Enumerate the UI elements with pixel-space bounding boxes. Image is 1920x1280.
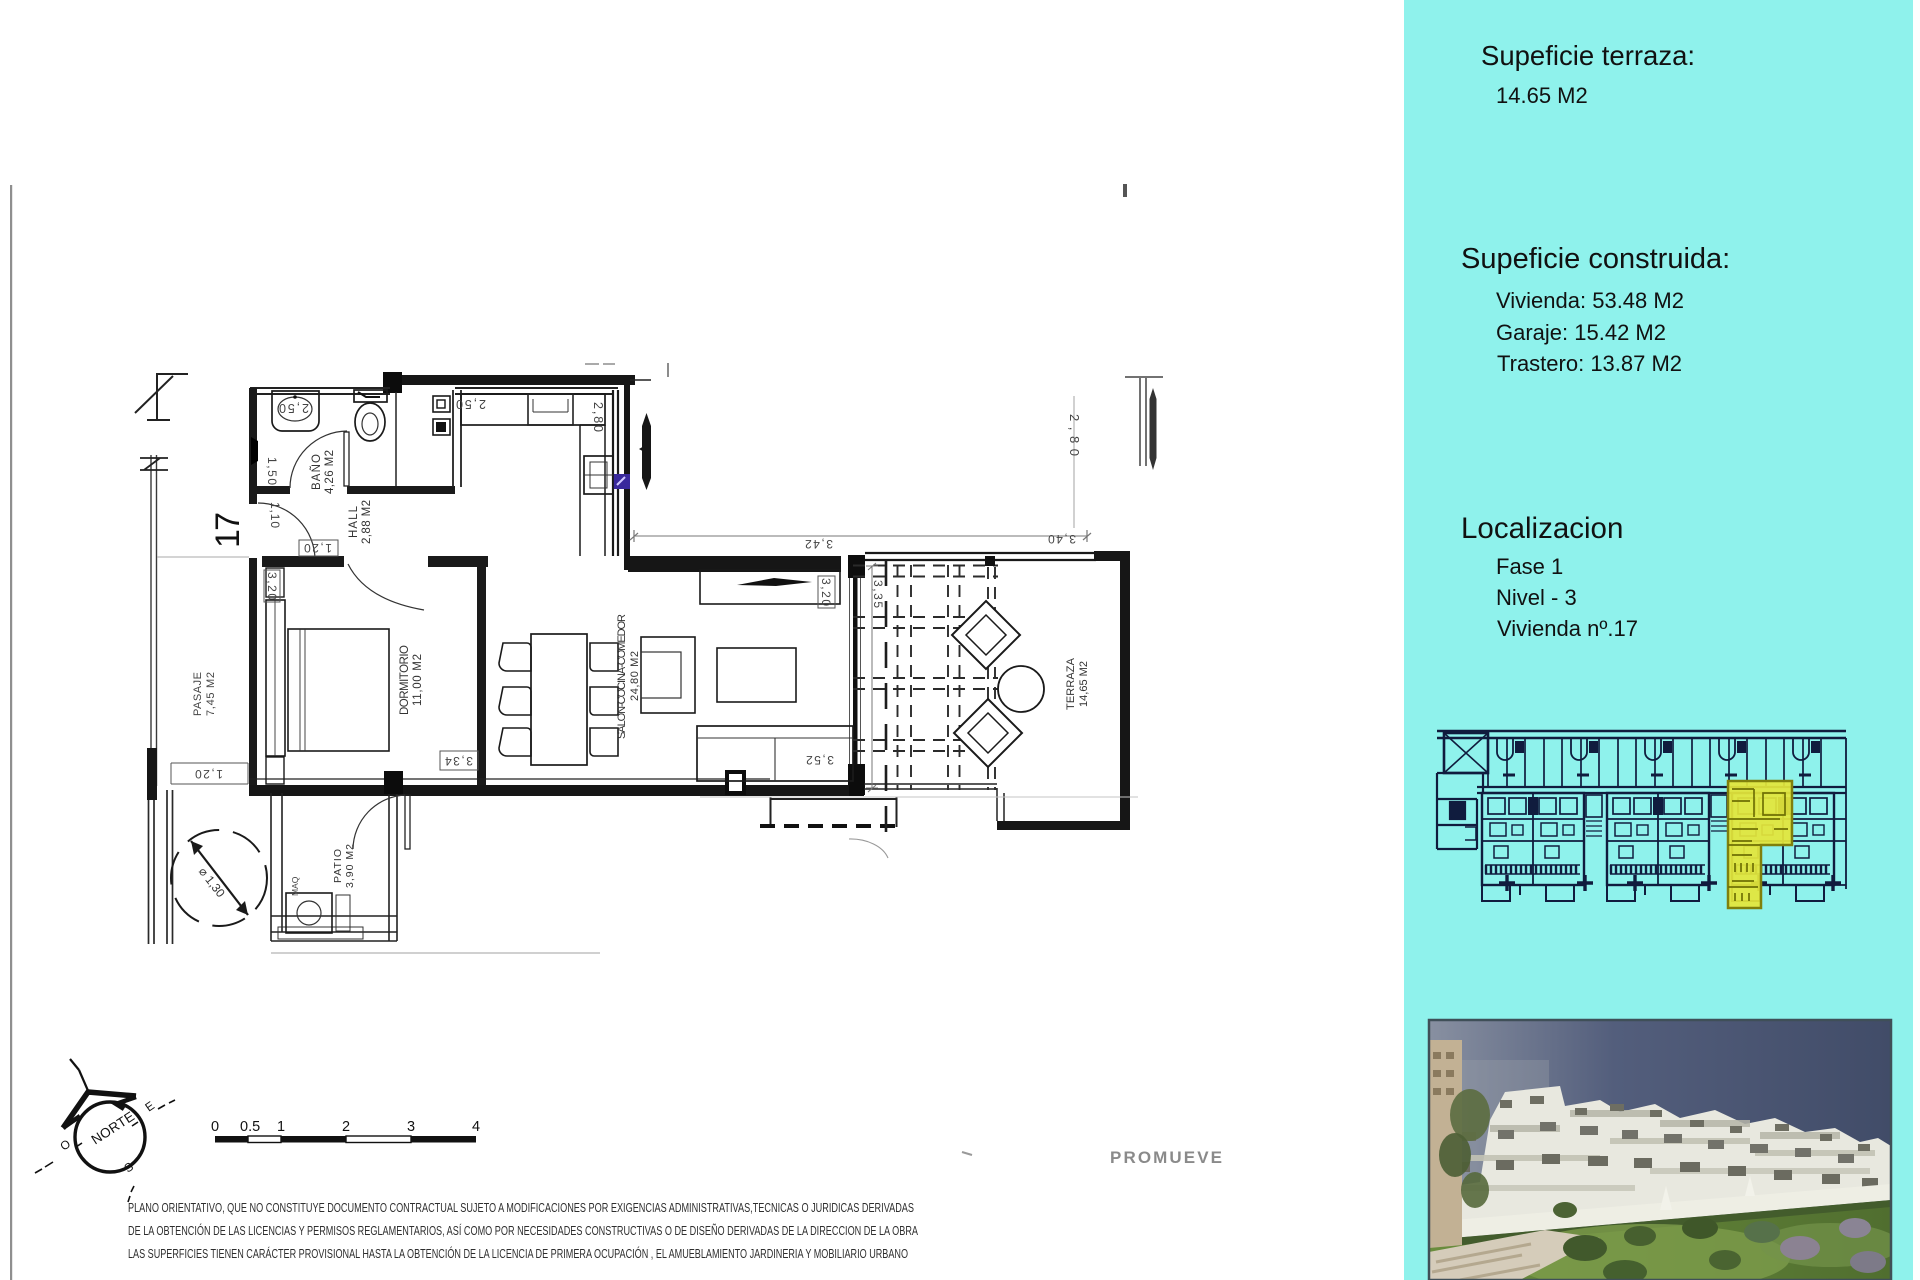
svg-text:4,26 M2: 4,26 M2: [324, 450, 336, 494]
svg-text:3,20: 3,20: [819, 578, 833, 606]
svg-text:Vivienda nº.17: Vivienda nº.17: [1497, 616, 1638, 641]
svg-text:PLANO ORIENTATIVO, QUE NO CONS: PLANO ORIENTATIVO, QUE NO CONSTITUYE DOC…: [128, 1200, 914, 1215]
svg-text:PATIO: PATIO: [332, 849, 344, 883]
svg-text:3,20: 3,20: [265, 572, 279, 600]
svg-text:Fase 1: Fase 1: [1496, 554, 1563, 579]
svg-text:7,45 M2: 7,45 M2: [205, 672, 217, 716]
svg-text:Vivienda: 53.48 M2: Vivienda: 53.48 M2: [1496, 288, 1684, 313]
svg-text:0: 0: [211, 1119, 219, 1135]
svg-text:2,50: 2,50: [279, 401, 309, 415]
svg-text:2,50: 2,50: [456, 397, 486, 411]
svg-text:Supeficie construida:: Supeficie construida:: [1461, 243, 1730, 275]
svg-text:2: 2: [342, 1119, 350, 1135]
svg-text:3: 3: [407, 1119, 415, 1135]
svg-text:Supeficie terraza:: Supeficie terraza:: [1481, 40, 1695, 71]
svg-text:2,80: 2,80: [591, 402, 605, 432]
svg-text:1,20: 1,20: [304, 541, 332, 555]
svg-text:MAQ: MAQ: [290, 876, 300, 896]
svg-text:PASAJE: PASAJE: [192, 672, 204, 716]
svg-text:1,20: 1,20: [195, 767, 223, 781]
svg-text:1,50: 1,50: [265, 457, 279, 485]
svg-text:4: 4: [472, 1119, 480, 1135]
svg-text:HALL: HALL: [348, 505, 360, 538]
svg-text:24,80 M2: 24,80 M2: [629, 651, 641, 701]
svg-text:3,35: 3,35: [871, 580, 885, 608]
svg-text:Trastero: 13.87 M2: Trastero: 13.87 M2: [1497, 351, 1682, 376]
svg-text:0.5: 0.5: [240, 1119, 260, 1135]
svg-text:14,65 M2: 14,65 M2: [1078, 661, 1090, 707]
svg-text:Nivel - 3: Nivel - 3: [1496, 585, 1577, 610]
svg-text:DORMITORIO: DORMITORIO: [399, 645, 411, 715]
svg-text:2,80: 2,80: [1067, 414, 1082, 456]
svg-text:3,34: 3,34: [445, 754, 473, 768]
svg-text:Garaje: 15.42 M2: Garaje: 15.42 M2: [1496, 320, 1666, 345]
svg-text:3,40: 3,40: [1048, 532, 1076, 546]
svg-text:1: 1: [277, 1119, 285, 1135]
svg-text:Localizacion: Localizacion: [1461, 512, 1623, 545]
svg-text:SALON-COCINA-COMEDOR: SALON-COCINA-COMEDOR: [616, 614, 628, 739]
svg-text:1,10: 1,10: [268, 502, 282, 528]
svg-text:TERRAZA: TERRAZA: [1065, 657, 1077, 710]
svg-text:3,52: 3,52: [806, 753, 834, 767]
svg-text:14.65 M2: 14.65 M2: [1496, 83, 1588, 108]
svg-text:LAS SUPERFICIES TIENEN CARÁCTE: LAS SUPERFICIES TIENEN CARÁCTER PROVISIO…: [128, 1246, 908, 1261]
svg-text:DE LA OBTENCIÓN DE LAS LICENCI: DE LA OBTENCIÓN DE LAS LICENCIAS Y PERMI…: [128, 1223, 918, 1238]
svg-text:11,00 M2: 11,00 M2: [412, 654, 424, 706]
svg-text:2,88 M2: 2,88 M2: [361, 500, 373, 544]
svg-text:BAÑO: BAÑO: [310, 454, 323, 490]
svg-text:3,42: 3,42: [805, 537, 833, 551]
svg-text:PROMUEVE: PROMUEVE: [1110, 1148, 1222, 1167]
svg-text:3,90 M2: 3,90 M2: [344, 844, 356, 888]
svg-text:17: 17: [209, 512, 247, 548]
